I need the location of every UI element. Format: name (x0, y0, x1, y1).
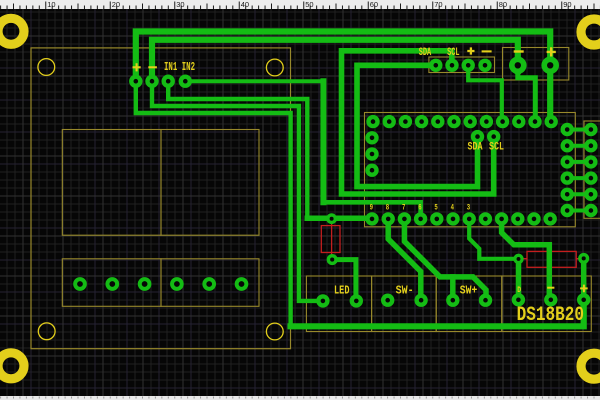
svg-text:LED: LED (334, 285, 350, 298)
svg-text:10: 10 (47, 0, 55, 9)
svg-text:SW-: SW- (396, 285, 414, 298)
svg-text:IN1 IN2: IN1 IN2 (164, 60, 195, 74)
svg-text:9: 9 (370, 203, 373, 213)
svg-text:SDA: SDA (468, 142, 483, 154)
svg-text:D: D (517, 285, 521, 295)
svg-text:3: 3 (467, 203, 470, 213)
svg-text:30: 30 (176, 0, 184, 9)
svg-text:SDA: SDA (419, 47, 432, 59)
svg-text:SCL: SCL (447, 47, 460, 59)
svg-text:80: 80 (499, 0, 507, 9)
svg-text:4: 4 (451, 203, 454, 213)
svg-text:90: 90 (563, 0, 571, 9)
svg-text:60: 60 (370, 0, 378, 9)
svg-text:8: 8 (386, 203, 389, 213)
svg-text:DS18B20: DS18B20 (517, 304, 584, 327)
svg-text:20: 20 (112, 0, 120, 9)
svg-text:6: 6 (418, 203, 421, 213)
svg-text:40: 40 (241, 0, 249, 9)
svg-text:SCL: SCL (489, 142, 504, 154)
svg-text:7: 7 (402, 203, 405, 213)
svg-text:50: 50 (305, 0, 313, 9)
svg-text:70: 70 (434, 0, 442, 9)
svg-text:5: 5 (434, 203, 437, 213)
svg-text:SW+: SW+ (460, 285, 478, 298)
